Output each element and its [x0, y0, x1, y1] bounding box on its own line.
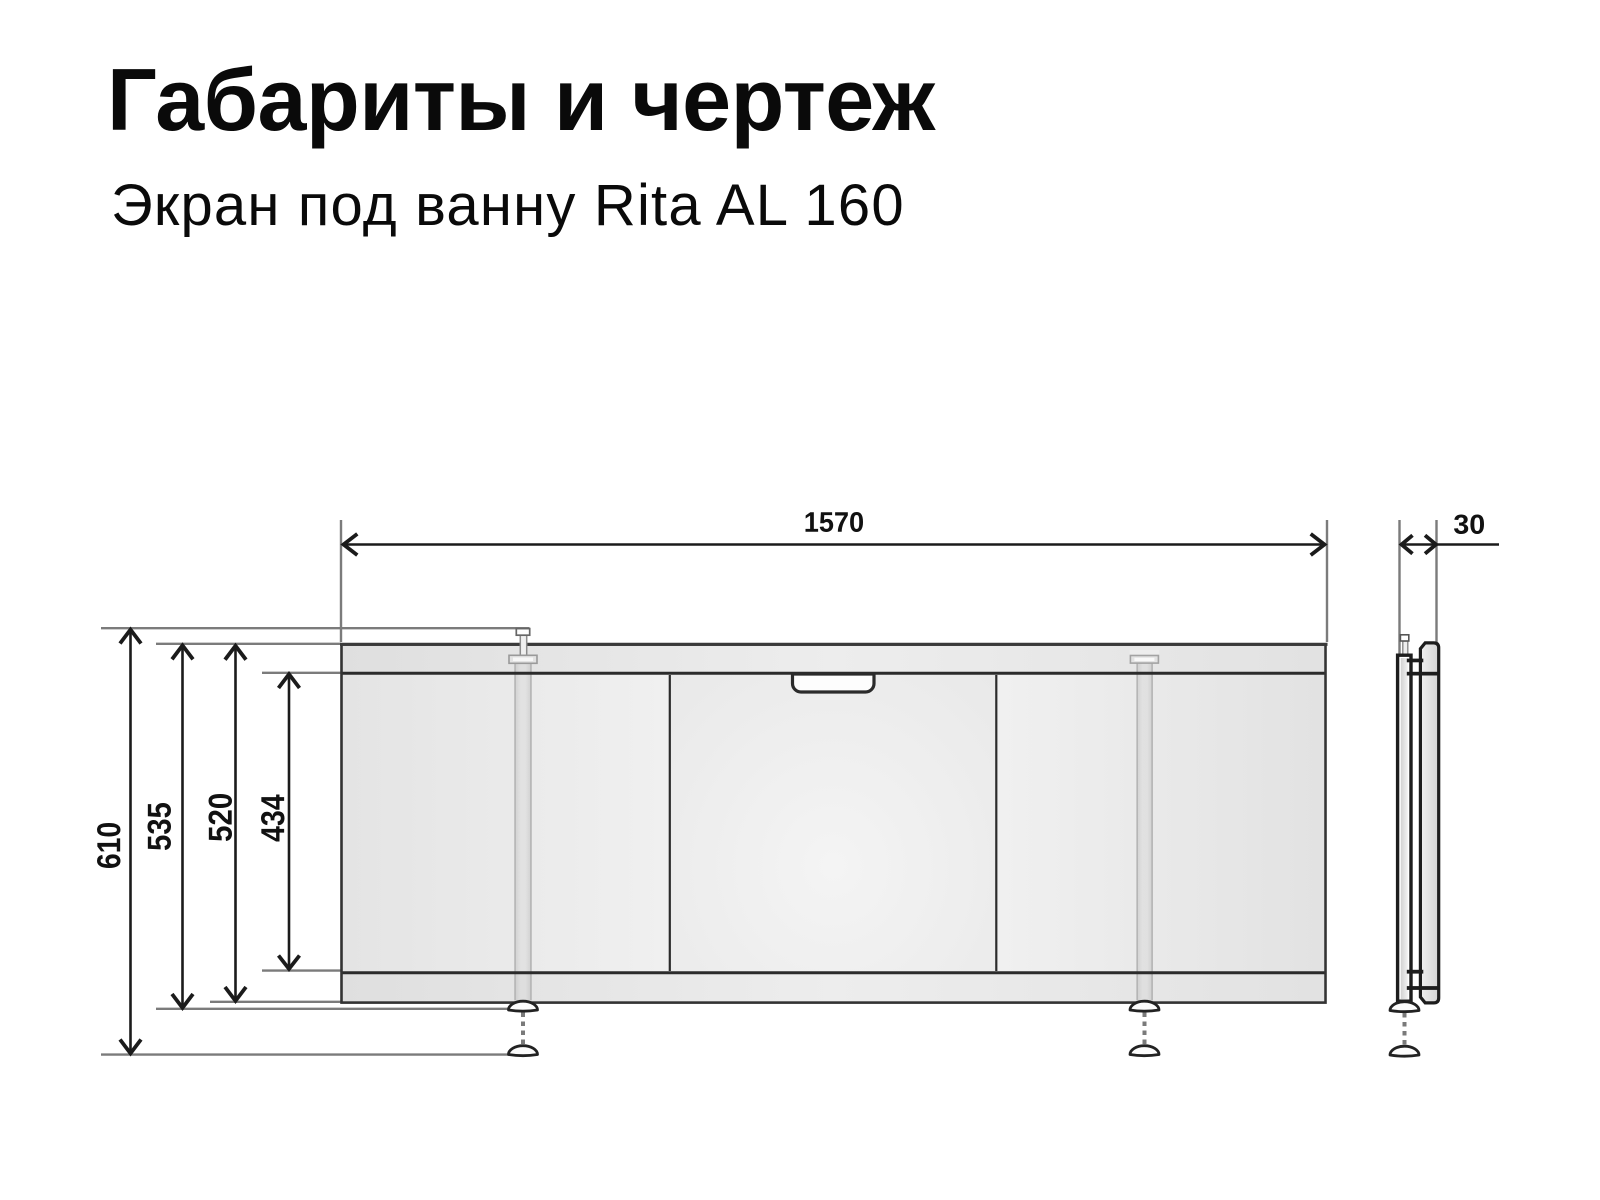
svg-text:Экран под ванну Rita AL 160: Экран под ванну Rita AL 160	[111, 173, 905, 238]
svg-text:Габариты и чертеж: Габариты и чертеж	[107, 50, 937, 149]
